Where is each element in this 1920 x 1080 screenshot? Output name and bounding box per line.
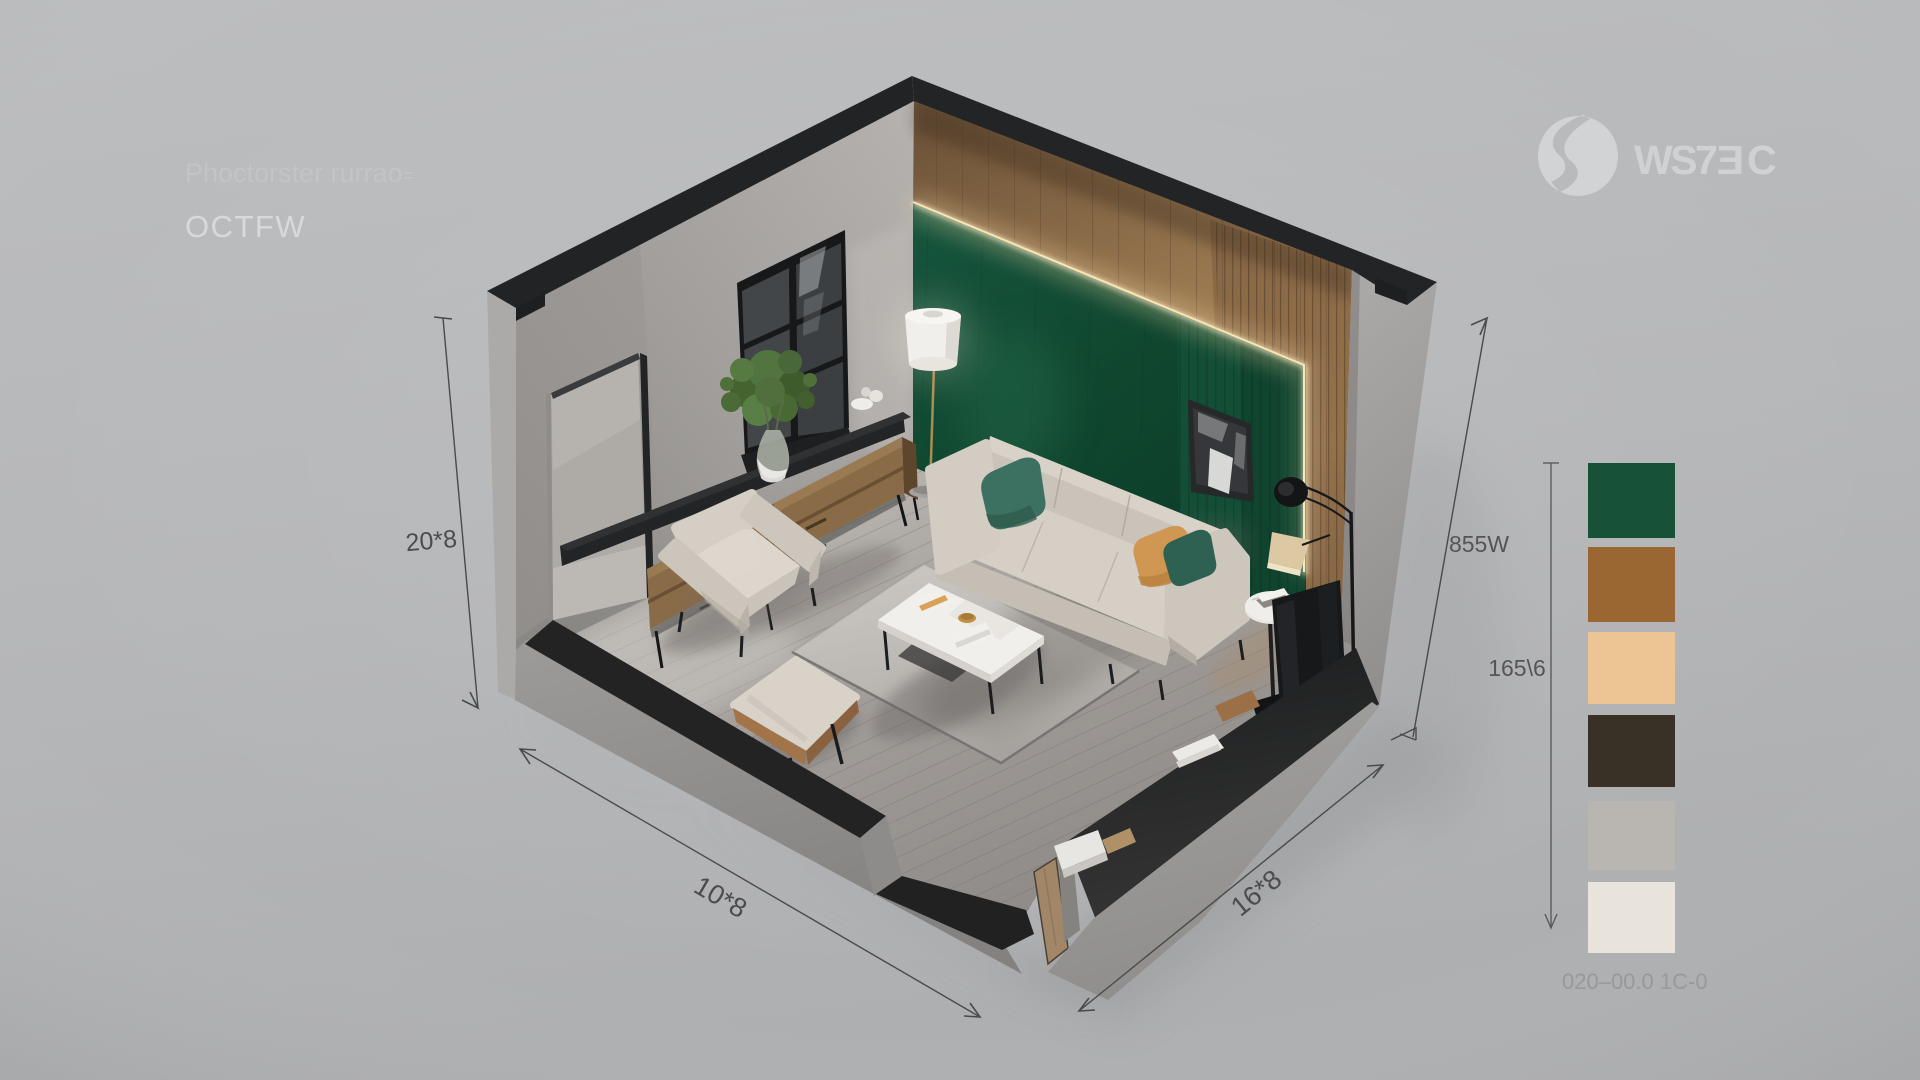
svg-text:Phoctorster rurrao=: Phoctorster rurrao=	[185, 158, 414, 188]
svg-text:C: C	[1747, 137, 1777, 183]
svg-text:165\6: 165\6	[1488, 655, 1546, 681]
svg-text:855W: 855W	[1449, 531, 1509, 557]
svg-text:20*8: 20*8	[404, 525, 458, 557]
svg-text:OCTFW: OCTFW	[185, 209, 306, 244]
svg-text:020–00.0 1C-0: 020–00.0 1C-0	[1562, 969, 1708, 994]
svg-text:E: E	[1717, 137, 1744, 183]
svg-text:WS7: WS7	[1634, 137, 1716, 183]
